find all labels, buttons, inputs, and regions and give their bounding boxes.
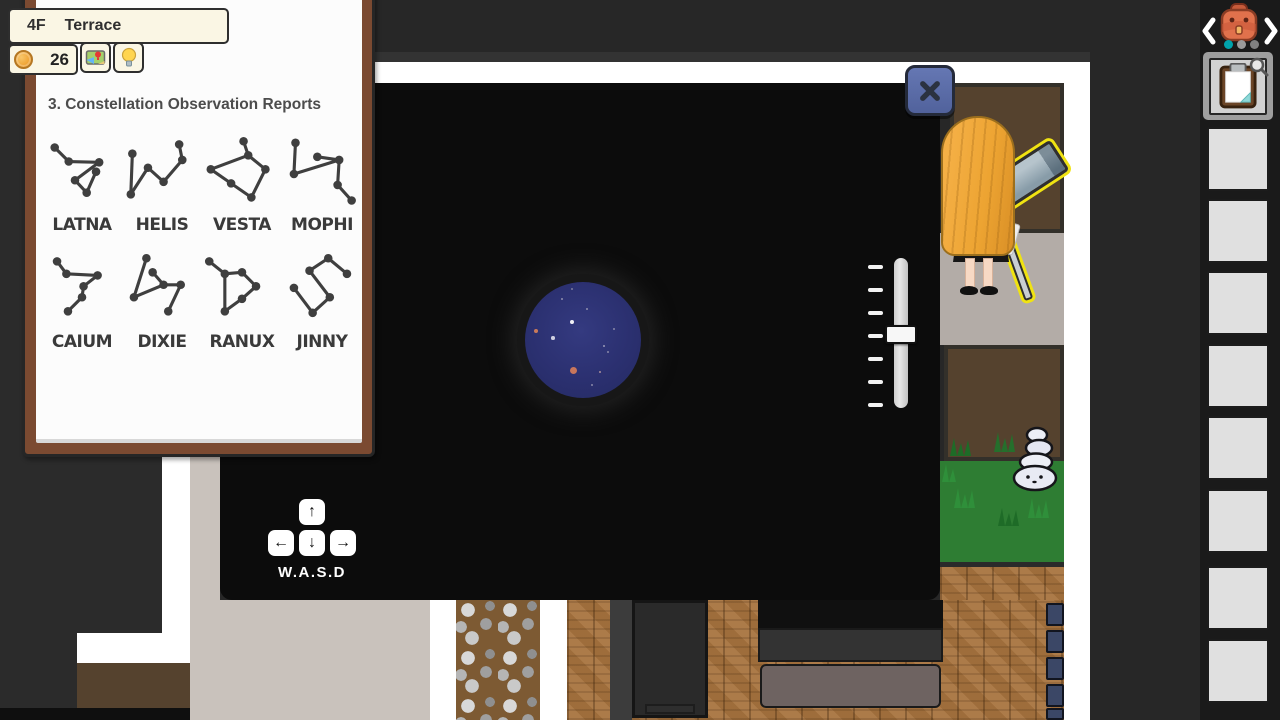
chevron-left-icon[interactable] [1202, 17, 1216, 45]
key-left-hint: ← [268, 530, 294, 556]
star [571, 288, 573, 290]
constellation-vesta: VESTA [202, 134, 282, 235]
coin-counter: 26 [8, 44, 78, 75]
slider-tick [868, 334, 883, 338]
grass-tuft [948, 436, 974, 456]
constellation-diagram [43, 251, 121, 331]
constellation-diagram [123, 134, 201, 214]
zen-stone-stack [1010, 426, 1062, 492]
page-dot-active [1224, 40, 1233, 49]
slider-tick [868, 380, 883, 384]
constellation-diagram [283, 134, 361, 214]
inventory-slot-empty[interactable] [1207, 344, 1269, 408]
character-shoe [960, 286, 978, 295]
constellation-jinny: JINNY [282, 251, 362, 352]
shelf-item [1046, 657, 1064, 680]
coin-count: 26 [33, 50, 76, 70]
star [534, 329, 538, 333]
report-title: 3. Constellation Observation Reports [48, 96, 321, 114]
up-arrow-icon: ↑ [308, 503, 316, 521]
slider-tick [868, 288, 883, 292]
inventory-slot-empty[interactable] [1207, 416, 1269, 480]
wall-bottom-1 [430, 600, 456, 720]
star [591, 384, 593, 386]
star [561, 298, 563, 300]
hint-button[interactable] [113, 42, 144, 73]
star [570, 367, 577, 374]
shelf-item [1046, 708, 1064, 720]
room-bottom-left [77, 663, 190, 708]
wall-left-horizontal [77, 633, 190, 663]
key-down-hint: ↓ [299, 530, 325, 556]
game-screen: ✕ ✕ ↑ ← ↓ → W.A.S.D [0, 0, 1280, 720]
backpack-icon[interactable] [1217, 2, 1261, 44]
grass-tuft [1026, 496, 1052, 518]
magnifier-icon [1248, 56, 1270, 78]
close-button[interactable] [905, 65, 955, 116]
star [613, 328, 615, 330]
dark-column [610, 600, 632, 720]
down-arrow-icon: ↓ [308, 534, 316, 552]
constellation-name: MOPHI [282, 215, 362, 235]
constellation-name: DIXIE [122, 332, 202, 352]
bed-frame [758, 628, 943, 662]
slider-tick [868, 311, 883, 315]
shelf-item [1046, 630, 1064, 653]
constellation-diagram [203, 251, 281, 331]
slider-tick [868, 265, 883, 269]
grass-tuft [996, 506, 1022, 526]
left-arrow-icon: ← [273, 534, 289, 552]
right-arrow-icon: → [335, 534, 351, 552]
star [607, 351, 609, 353]
map-button[interactable] [80, 42, 111, 73]
constellation-diagram [203, 134, 281, 214]
wall-top-band [375, 62, 1090, 83]
grass-tuft [952, 486, 978, 508]
gravel-path [456, 600, 540, 720]
wall-right-vertical [1064, 62, 1090, 720]
inventory-slot-empty[interactable] [1207, 199, 1269, 263]
constellation-grid: LATNAHELISVESTAMOPHICAIUMDIXIERANUXJINNY [42, 134, 362, 352]
constellation-ranux: RANUX [202, 251, 282, 352]
telescope-sky-view [525, 282, 641, 398]
constellation-diagram [43, 134, 121, 214]
grass-tuft [940, 462, 966, 482]
close-x-icon [915, 76, 945, 106]
page-dot [1250, 40, 1259, 49]
constellation-name: LATNA [42, 215, 122, 235]
zoom-slider-handle[interactable] [885, 325, 917, 344]
page-dot [1237, 40, 1246, 49]
star [586, 308, 588, 310]
constellation-name: HELIS [122, 215, 202, 235]
key-up-hint: ↑ [299, 499, 325, 525]
constellation-mophi: MOPHI [282, 134, 362, 235]
constellation-name: CAIUM [42, 332, 122, 352]
wall-top-edge [375, 52, 1090, 62]
star [603, 345, 605, 347]
star [599, 371, 602, 374]
bottom-left-shadow [0, 708, 190, 720]
star [570, 320, 574, 324]
location-label: Terrace [65, 17, 122, 35]
inventory-slot-empty[interactable] [1207, 489, 1269, 553]
character-leg [965, 258, 975, 288]
wall-bottom-2 [540, 600, 567, 720]
dresser-base [645, 704, 695, 714]
slider-tick [868, 357, 883, 361]
slot-item-report-clipboard [1209, 58, 1267, 115]
constellation-name: VESTA [202, 215, 282, 235]
map-icon [85, 47, 106, 68]
constellation-diagram [123, 251, 201, 331]
star [551, 336, 555, 340]
inventory-slot-empty[interactable] [1207, 271, 1269, 335]
coin-icon [14, 50, 33, 69]
constellation-dixie: DIXIE [122, 251, 202, 352]
bed-blanket [760, 664, 941, 708]
shelf-item [1046, 684, 1064, 707]
key-right-hint: → [330, 530, 356, 556]
character-shoe [980, 286, 998, 295]
movement-hint-label: W.A.S.D [240, 564, 384, 581]
dresser: ✕ ✕ [632, 600, 708, 718]
inventory-sidebar [1200, 0, 1280, 720]
floor-label: 4F [27, 17, 46, 35]
floor-bottom-beige [220, 600, 430, 720]
floor-left-strip [190, 457, 220, 720]
chevron-right-icon[interactable] [1264, 17, 1278, 45]
constellation-diagram [283, 251, 361, 331]
inventory-slot-empty[interactable] [1207, 566, 1269, 630]
constellation-name: RANUX [202, 332, 282, 352]
lightbulb-icon [119, 47, 139, 68]
inventory-slot-empty[interactable] [1207, 127, 1269, 191]
constellation-latna: LATNA [42, 134, 122, 235]
character-leg [983, 258, 993, 288]
character-hair [941, 116, 1015, 256]
location-sign: 4F Terrace [8, 8, 229, 44]
shelf-item [1046, 603, 1064, 626]
inventory-slot-selected[interactable] [1203, 52, 1273, 120]
constellation-name: JINNY [282, 332, 362, 352]
slider-tick [868, 403, 883, 407]
inventory-slot-empty[interactable] [1207, 639, 1269, 703]
constellation-helis: HELIS [122, 134, 202, 235]
bed-headboard [758, 600, 943, 628]
constellation-caium: CAIUM [42, 251, 122, 352]
